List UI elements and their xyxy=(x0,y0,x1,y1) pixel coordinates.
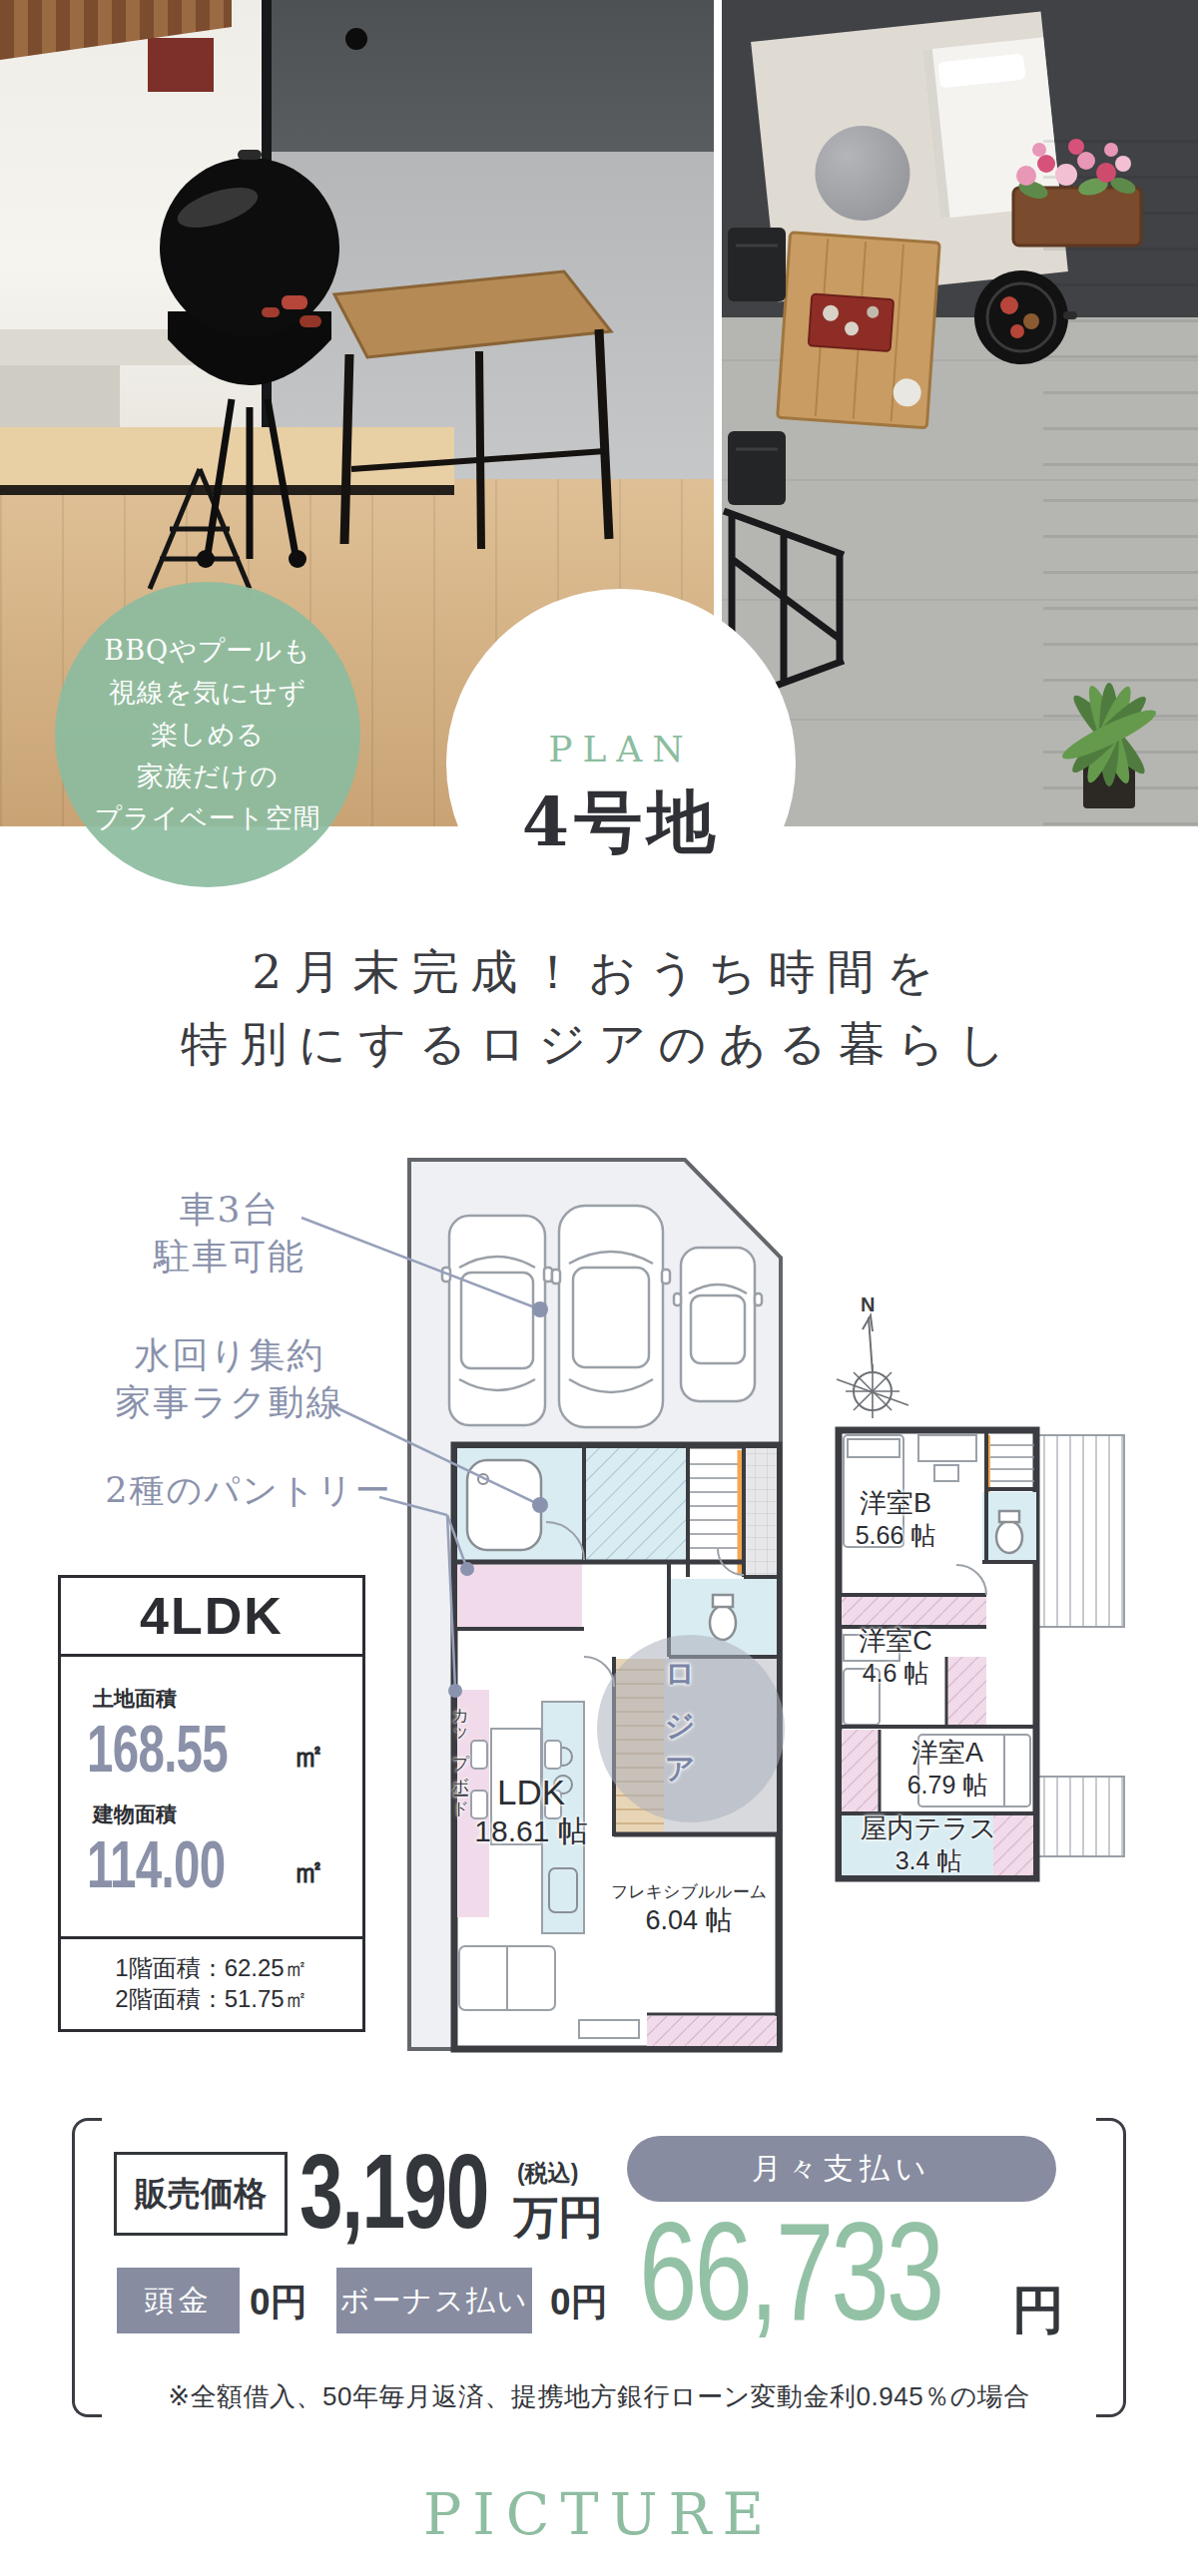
badge-line: 楽しめる xyxy=(94,714,320,756)
bathtub-icon xyxy=(467,1460,541,1550)
land-area-row: 168.55 ㎡ xyxy=(87,1713,336,1787)
room-b-size: 5.66 帖 xyxy=(799,1520,992,1550)
loggia-illustration xyxy=(722,0,1198,826)
headline: 2月末完成！おうち時間を 特別にするロジアのある暮らし xyxy=(0,936,1198,1080)
room-a-label: 洋室A 6.79 帖 xyxy=(851,1737,1044,1800)
bonus-chip: ボーナス払い xyxy=(336,2268,532,2333)
building-area-label: 建物面積 xyxy=(93,1801,336,1828)
flex-name: フレキシブルルーム xyxy=(591,1880,787,1904)
annotation-water: 水回り集約 家事ラク動線 xyxy=(96,1331,363,1425)
floor-areas: 1階面積：62.25㎡ 2階面積：51.75㎡ xyxy=(61,1936,362,2029)
sale-price-tax: (税込) xyxy=(517,2158,578,2189)
room-b-name: 洋室B xyxy=(799,1487,992,1520)
ldk-name: LDK xyxy=(431,1773,631,1812)
flex-size: 6.04 帖 xyxy=(591,1904,787,1936)
building-area-value: 114.00 xyxy=(87,1828,225,1900)
chair xyxy=(728,228,786,505)
terrace-label: 屋内テラス 3.4 帖 xyxy=(827,1812,1030,1875)
annotation-line: 車3台 xyxy=(96,1186,363,1233)
first-floor-plan xyxy=(454,1445,785,2049)
land-area-label: 土地面積 xyxy=(93,1685,336,1713)
sale-price-label: 販売価格 xyxy=(114,2152,288,2236)
plant xyxy=(1058,683,1160,808)
outdoor-table xyxy=(778,233,940,428)
headline-line1: 2月末完成！おうち時間を xyxy=(0,936,1198,1008)
bracket-left xyxy=(72,2118,102,2417)
room-c-label: 洋室C 4.6 帖 xyxy=(799,1625,992,1688)
annotation-pantry: 2種のパントリー xyxy=(84,1467,413,1514)
floor2-area: 2階面積：51.75㎡ xyxy=(61,1983,362,2014)
feature-badge-text: BBQやプールも 視線を気にせず 楽しめる 家族だけの プライベート空間 xyxy=(94,630,320,839)
annotation-line: 家事ラク動線 xyxy=(96,1378,363,1425)
badge-line: BBQやプールも xyxy=(94,630,320,672)
ldk-label: LDK 18.61 帖 xyxy=(431,1773,631,1850)
feature-badge: BBQやプールも 視線を気にせず 楽しめる 家族だけの プライベート空間 xyxy=(55,582,360,887)
headline-line2: 特別にするロジアのある暮らし xyxy=(0,1008,1198,1080)
land-area-unit: ㎡ xyxy=(293,1734,325,1779)
photo-loggia-overhead xyxy=(722,0,1198,826)
room-c-size: 4.6 帖 xyxy=(799,1658,992,1688)
toilet-icon xyxy=(996,1511,1022,1553)
flower-planter xyxy=(1013,139,1141,246)
room-a-size: 6.79 帖 xyxy=(851,1770,1044,1800)
plan-circle: PLAN 4号地 xyxy=(446,589,796,938)
roof-hatch xyxy=(1038,1435,1124,1627)
spec-box: 4LDK 土地面積 168.55 ㎡ 建物面積 114.00 ㎡ 1階面積：62… xyxy=(58,1575,365,2032)
terrace-name: 屋内テラス xyxy=(827,1812,1030,1845)
floor1-area: 1階面積：62.25㎡ xyxy=(61,1952,362,1983)
plan-number: 4号地 xyxy=(522,777,720,868)
sale-price-unit: 万円 xyxy=(513,2188,603,2248)
annotation-line: 駐車可能 xyxy=(96,1233,363,1280)
building-area-row: 114.00 ㎡ xyxy=(87,1828,336,1902)
section-title-picture: PICTURE xyxy=(0,2481,1198,2547)
layout-type: 4LDK xyxy=(61,1578,362,1657)
room-b-label: 洋室B 5.66 帖 xyxy=(799,1487,992,1550)
annotation-parking: 車3台 駐車可能 xyxy=(96,1186,363,1280)
roof-hatch xyxy=(1038,1777,1124,1856)
terrace-size: 3.4 帖 xyxy=(827,1845,1030,1875)
badge-line: プライベート空間 xyxy=(94,797,320,839)
bonus-value: 0円 xyxy=(550,2278,608,2327)
toilet-icon xyxy=(710,1595,736,1640)
deposit-chip: 頭金 xyxy=(117,2268,240,2333)
badge-line: 視線を気にせず xyxy=(94,672,320,714)
flex-room-label: フレキシブルルーム 6.04 帖 xyxy=(591,1880,787,1936)
grill-stand xyxy=(150,469,250,589)
land-area-value: 168.55 xyxy=(87,1713,228,1785)
wood-table xyxy=(334,271,611,549)
bbq-grill-top-icon xyxy=(974,270,1077,364)
annotation-line: 2種のパントリー xyxy=(84,1467,413,1514)
sale-price-value: 3,190 xyxy=(299,2138,488,2244)
monthly-payment-unit: 円 xyxy=(1012,2276,1064,2345)
room-a-name: 洋室A xyxy=(851,1737,1044,1770)
loggia-label: ロジア xyxy=(659,1645,700,1783)
room-c-name: 洋室C xyxy=(799,1625,992,1658)
badge-line: 家族だけの xyxy=(94,756,320,797)
ldk-size: 18.61 帖 xyxy=(431,1812,631,1850)
compass-north-label: N xyxy=(861,1293,875,1315)
plan-label: PLAN xyxy=(548,729,694,770)
deposit-value: 0円 xyxy=(250,2278,307,2327)
monthly-payment-value: 66,733 xyxy=(639,2202,941,2341)
annotation-line: 水回り集約 xyxy=(96,1331,363,1378)
spec-body: 土地面積 168.55 ㎡ 建物面積 114.00 ㎡ xyxy=(61,1657,362,1902)
flyer-page: BBQやプールも 視線を気にせず 楽しめる 家族だけの プライベート空間 PLA… xyxy=(0,0,1198,2576)
bracket-right xyxy=(1096,2118,1126,2417)
loan-note: ※全額借入、50年毎月返済、提携地方銀行ローン変動金利0.945％の場合 xyxy=(0,2379,1198,2414)
building-area-unit: ㎡ xyxy=(293,1849,325,1894)
compass-icon xyxy=(837,1315,908,1418)
